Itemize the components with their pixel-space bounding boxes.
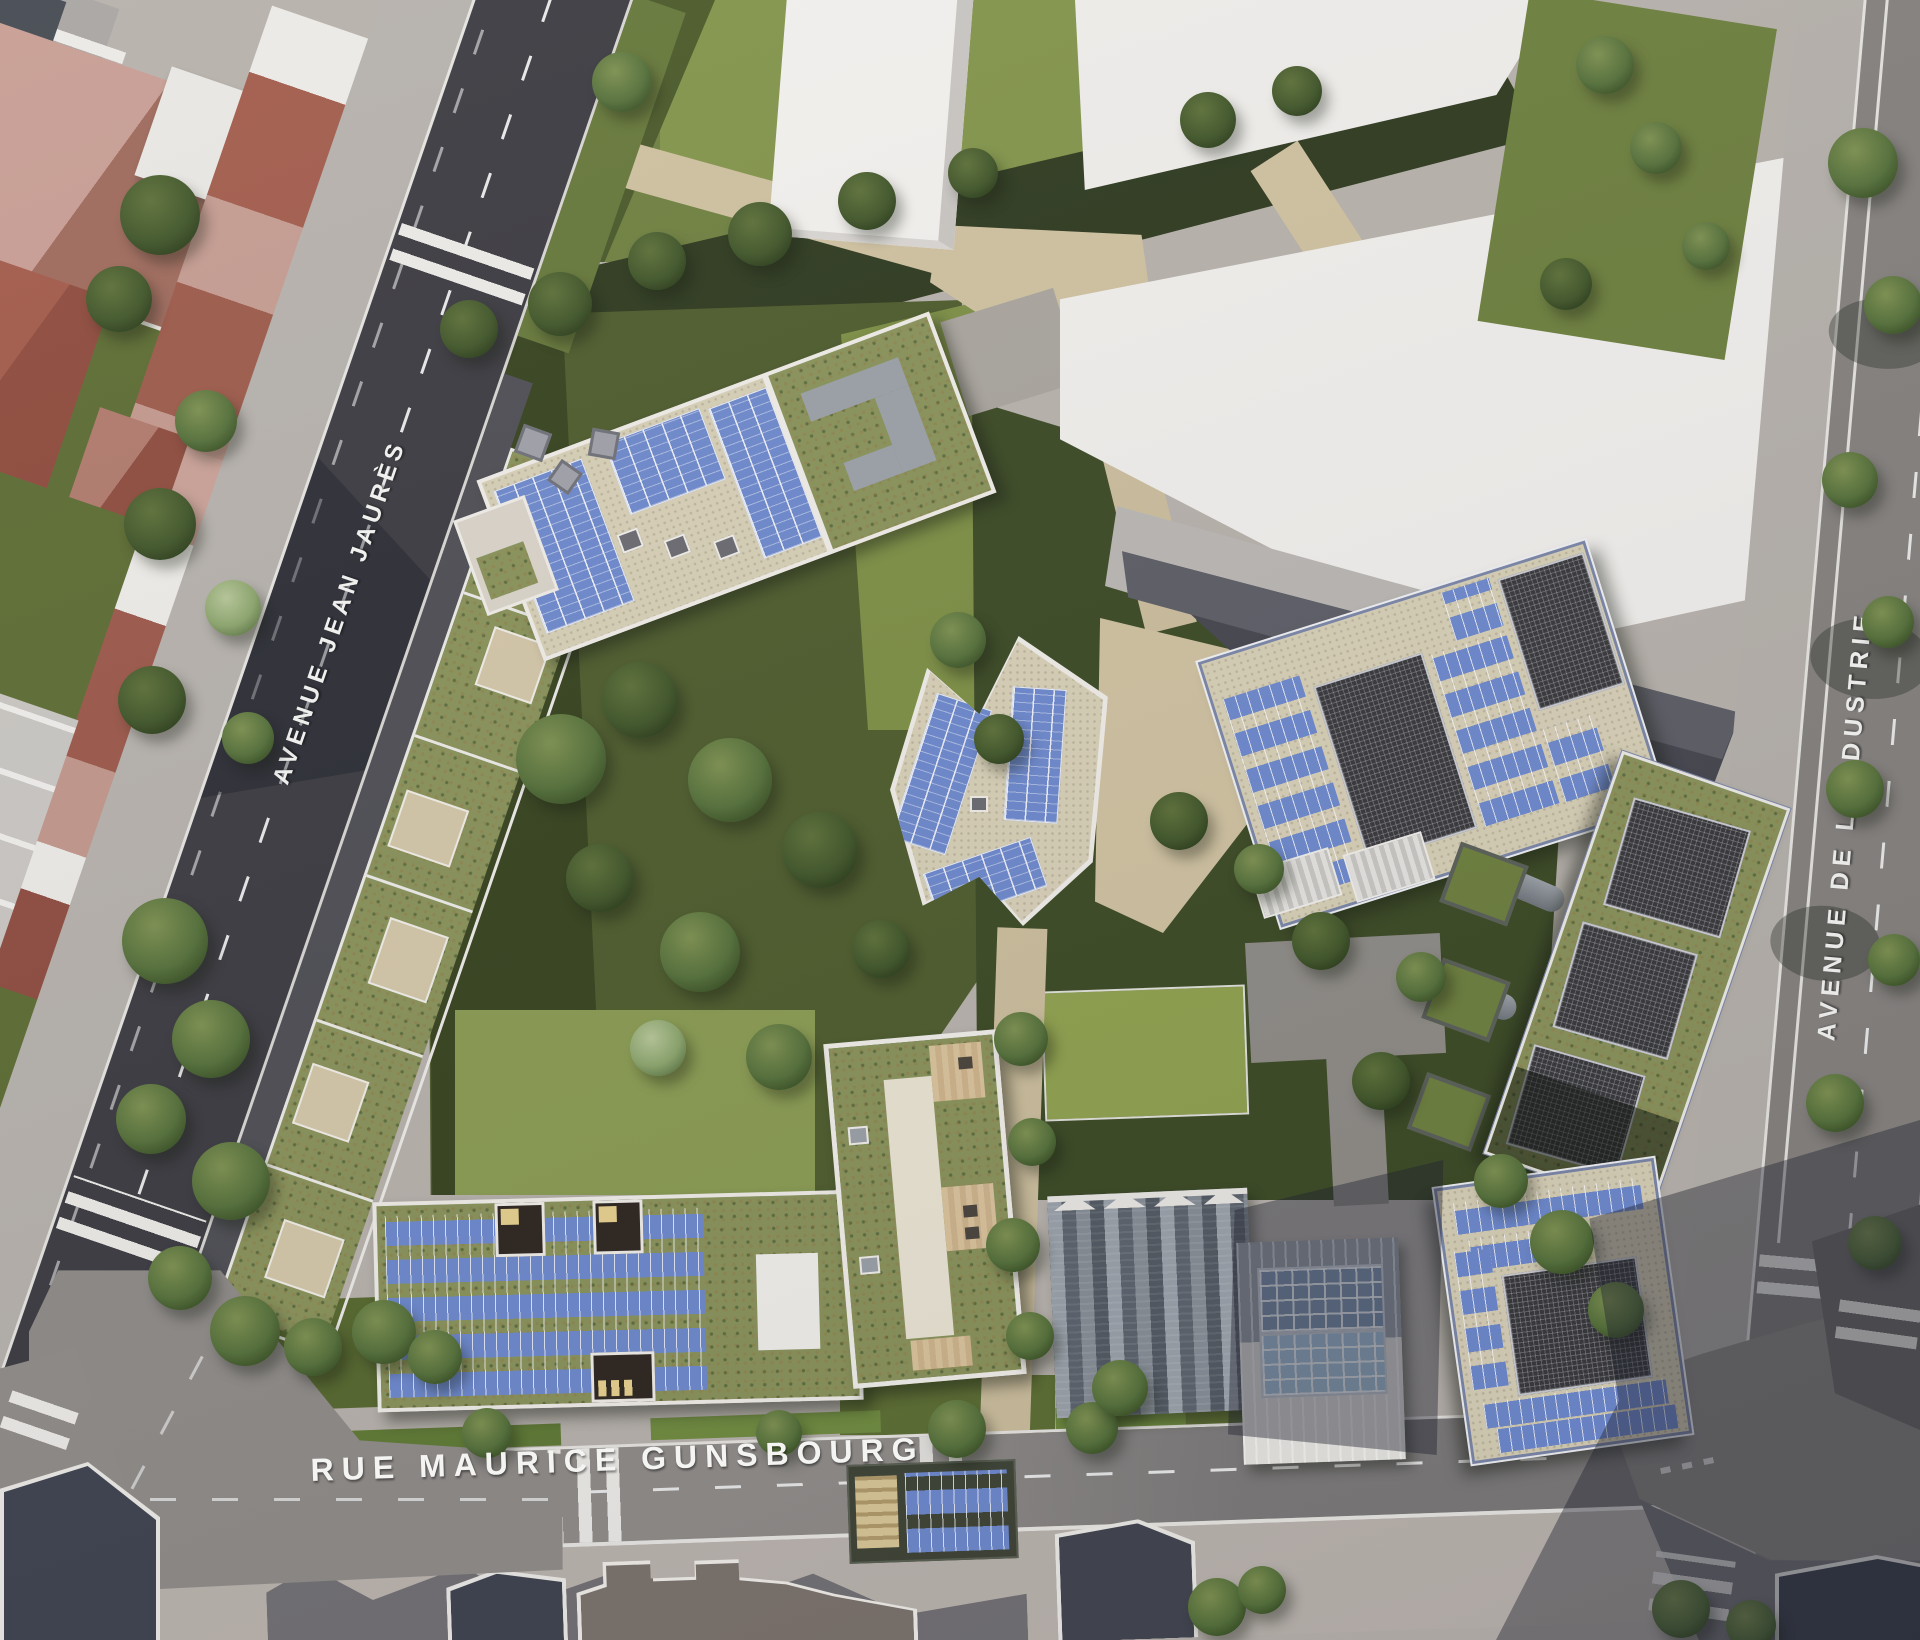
tree <box>222 712 274 764</box>
gabled-hall <box>1047 1188 1256 1419</box>
tree <box>782 812 858 888</box>
deck-furniture-2 <box>963 1204 978 1217</box>
tree <box>838 172 896 230</box>
tree <box>602 662 678 738</box>
deck-furniture-3 <box>965 1226 980 1239</box>
tree <box>124 488 196 560</box>
tree <box>1530 1210 1594 1274</box>
tree <box>852 920 910 978</box>
tree <box>1868 934 1920 986</box>
tree <box>1150 792 1208 850</box>
strip-patio <box>368 917 449 1003</box>
strip-patio <box>292 1063 370 1143</box>
tree <box>1180 92 1236 148</box>
tree <box>930 612 986 668</box>
middle-roof-box-1 <box>848 1126 869 1146</box>
tree <box>1864 276 1920 334</box>
tree <box>746 1024 812 1090</box>
tree <box>1576 36 1634 94</box>
tree <box>1862 596 1914 648</box>
tree <box>408 1330 462 1384</box>
tree <box>994 1012 1048 1066</box>
tree <box>1234 844 1284 894</box>
mg-building-dark-east <box>1054 1517 1198 1640</box>
tree <box>172 1000 250 1078</box>
south-stair-box-3 <box>590 1351 655 1403</box>
tree <box>1630 122 1682 174</box>
south-stair-hatch-1 <box>501 1209 519 1225</box>
south-stair-hatch-2 <box>599 1206 617 1222</box>
south-roof-skylight <box>756 1253 820 1351</box>
tree <box>948 148 998 198</box>
tree <box>1396 952 1446 1002</box>
tree <box>1822 452 1878 508</box>
tree <box>1828 128 1898 198</box>
tree <box>928 1400 986 1458</box>
tree <box>1006 1312 1054 1360</box>
tree <box>440 300 498 358</box>
tree <box>592 52 652 112</box>
tree <box>974 714 1024 764</box>
tree <box>148 1246 212 1310</box>
tree <box>192 1142 270 1220</box>
intersection-dashes <box>150 1498 550 1501</box>
tree <box>284 1318 342 1376</box>
deck-furniture-1 <box>958 1056 973 1069</box>
tree <box>122 898 208 984</box>
middle-building <box>823 1029 1026 1389</box>
canopy-solar <box>905 1469 1010 1553</box>
aerial-site-render: AVENUE JEAN JAURÈS AVENUE DE L'INDUSTRIE <box>0 0 1920 1640</box>
middle-deck-south <box>910 1336 972 1371</box>
tree <box>86 266 152 332</box>
tree <box>1238 1566 1286 1614</box>
tree <box>120 175 200 255</box>
tree <box>630 1020 686 1076</box>
tree <box>118 666 186 734</box>
tree <box>205 580 261 636</box>
tree <box>1008 1118 1056 1166</box>
mg-building-dark-east-roof <box>1058 1521 1194 1640</box>
tree <box>660 912 740 992</box>
pentagon-rooftop-vent <box>970 796 988 812</box>
south-stair-box-1 <box>494 1202 545 1257</box>
solar-canopy <box>846 1459 1018 1564</box>
tree <box>1826 760 1884 818</box>
tree <box>528 272 592 336</box>
mg-building-dark-west-roof <box>450 1571 565 1640</box>
tree <box>175 390 237 452</box>
tree <box>352 1300 416 1364</box>
tree <box>566 844 634 912</box>
strip-patio <box>264 1219 345 1298</box>
shadow-se-building <box>1228 1160 1450 1455</box>
strip-patio <box>387 789 469 867</box>
tree <box>1806 1074 1864 1132</box>
middle-roof-box-2 <box>859 1255 880 1275</box>
tree <box>986 1218 1040 1272</box>
playground-item-3 <box>588 428 620 460</box>
tree <box>1352 1052 1410 1110</box>
south-stair-box-2 <box>592 1199 643 1254</box>
tree <box>1272 66 1322 116</box>
tree <box>516 714 606 804</box>
tree <box>1092 1360 1148 1416</box>
south-stair-hatch-3 <box>598 1380 634 1397</box>
tree <box>628 232 686 290</box>
tree <box>210 1296 280 1366</box>
north-building-terrace-s3 <box>844 445 903 491</box>
north-building-annex-green <box>476 541 538 599</box>
tree <box>1682 222 1730 270</box>
tree <box>688 738 772 822</box>
tree <box>728 202 792 266</box>
middle-deck-north <box>929 1042 986 1102</box>
tree <box>1474 1154 1528 1208</box>
tree <box>1292 912 1350 970</box>
sports-lawn <box>1043 987 1247 1120</box>
tree <box>116 1084 186 1154</box>
canopy-stair <box>855 1475 899 1548</box>
tree <box>1540 258 1592 310</box>
